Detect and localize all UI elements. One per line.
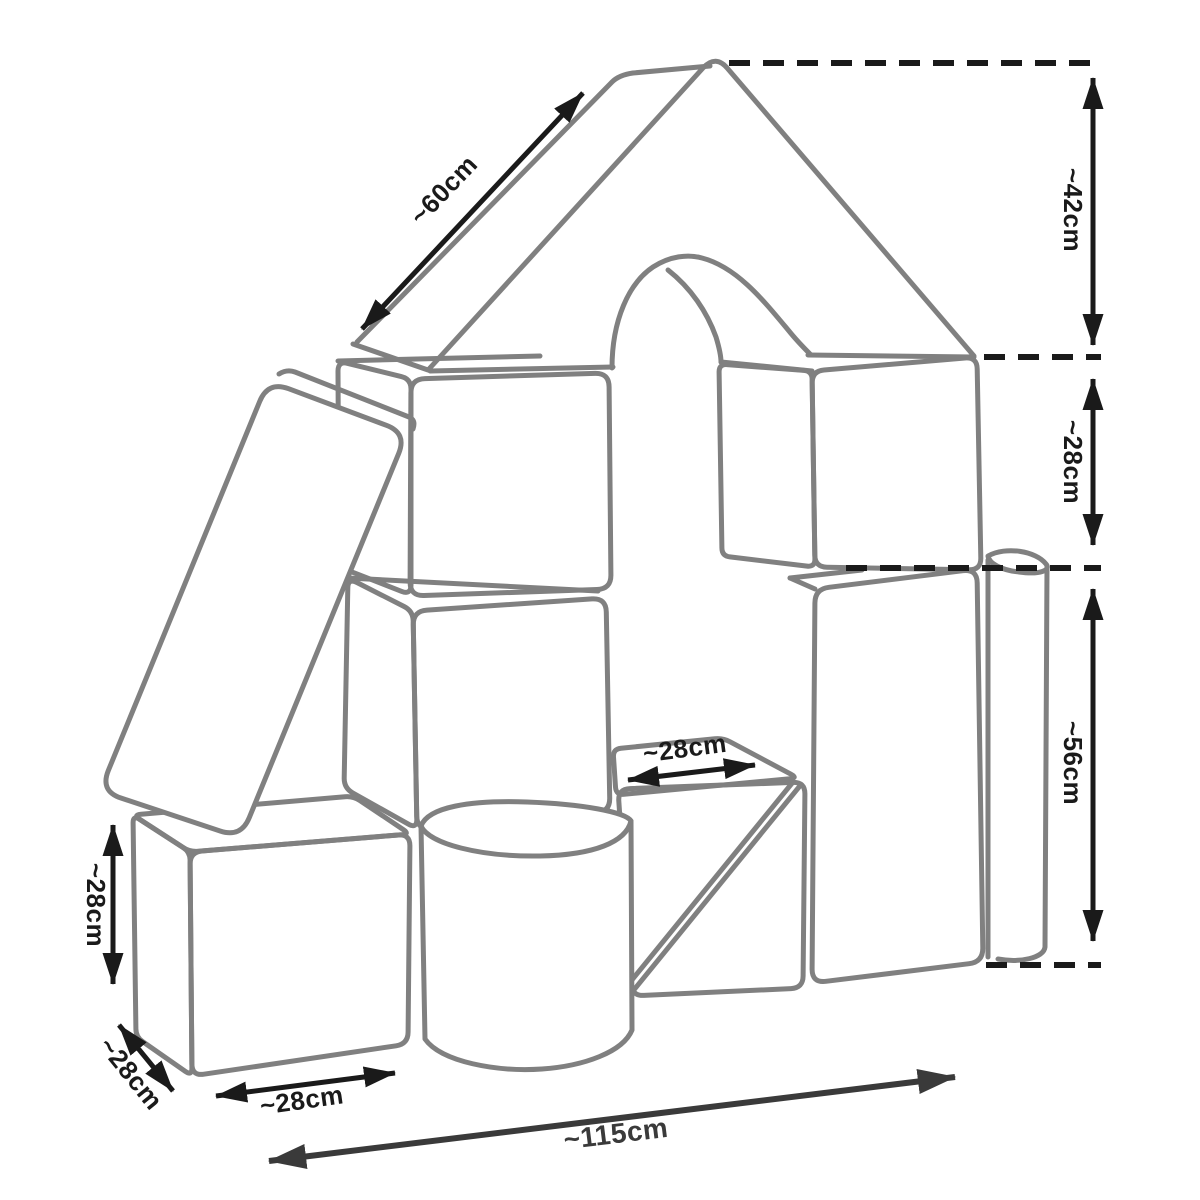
dim-upper-section-height-label: ~28cm	[1058, 420, 1088, 504]
roof-bottom-edge-right	[808, 355, 974, 357]
dim-roof-height-label: ~42cm	[1058, 168, 1088, 252]
diagram-canvas: ~60cm ~42cm ~28cm ~56cm ~28cm ~28cm ~28c…	[0, 0, 1200, 1200]
dim-cube-height-label: ~28cm	[81, 863, 111, 947]
cylinder-block-body	[421, 802, 632, 1070]
dim-lower-section-height-label: ~56cm	[1058, 721, 1088, 805]
soft-play-blocks-dimension-diagram: ~60cm ~42cm ~28cm ~56cm ~28cm ~28cm ~28c…	[0, 0, 1200, 1200]
